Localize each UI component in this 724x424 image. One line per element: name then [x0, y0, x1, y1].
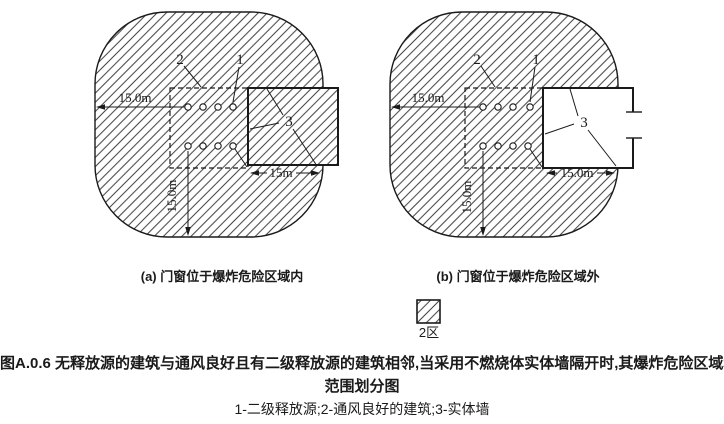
release-source-dot: [215, 104, 221, 110]
figure-a06-page: 15.0m 15m 15.0m: [0, 0, 724, 424]
zone2-label: 2区: [419, 325, 439, 340]
release-source-dot: [185, 143, 191, 149]
solid-wall-building-b-fill: [543, 87, 633, 169]
release-source-dot: [495, 104, 501, 110]
release-source-dot: [200, 143, 206, 149]
zone2-hatch-swatch-icon: [417, 300, 440, 323]
diagram-b-caption: (b) 门窗位于爆炸危险区域外: [436, 269, 599, 284]
figure-title-line2: 范围划分图: [0, 375, 724, 396]
dim-bottom-text-a: 15m: [269, 165, 292, 180]
release-source-dot: [510, 143, 516, 149]
callout-1-b: 1: [532, 52, 540, 68]
callout-3-b: 3: [580, 115, 588, 131]
callout-3-a: 3: [285, 114, 293, 130]
release-source-dot: [525, 143, 531, 149]
diagram-a: 15.0m 15m 15.0m: [95, 12, 338, 284]
figure-title-line1: 图A.0.6 无释放源的建筑与通风良好且有二级释放源的建筑相邻,当采用不燃烧体实…: [0, 352, 724, 373]
release-source-dot: [200, 104, 206, 110]
release-source-dot: [230, 143, 236, 149]
dim-left-text-a: 15.0m: [119, 90, 152, 105]
callout-2-b: 2: [473, 52, 481, 68]
diagram-a-caption: (a) 门窗位于爆炸危险区域内: [141, 269, 304, 284]
callout-2-a: 2: [176, 52, 184, 68]
diagram-b: 15.0m 15.0m 15.0m 2 1: [390, 12, 642, 284]
dim-bottom-text-b: 15.0m: [561, 165, 594, 180]
release-source-dot: [495, 143, 501, 149]
zoning-diagrams-canvas: 15.0m 15m 15.0m: [0, 0, 724, 345]
release-source-dot: [527, 104, 533, 110]
callout-1-a: 1: [236, 52, 244, 68]
legend: 2区: [417, 300, 440, 340]
release-source-dot: [215, 143, 221, 149]
release-source-dot: [480, 143, 486, 149]
dim-vertical-text-b: 15.0m: [459, 181, 474, 214]
release-source-dot: [185, 104, 191, 110]
release-source-dot: [510, 104, 516, 110]
dim-vertical-text-a: 15.0m: [164, 180, 179, 213]
figure-key-line: 1-二级释放源;2-通风良好的建筑;3-实体墙: [0, 399, 724, 419]
release-source-dot: [230, 104, 236, 110]
dim-left-text-b: 15.0m: [412, 90, 445, 105]
release-source-dot: [480, 104, 486, 110]
